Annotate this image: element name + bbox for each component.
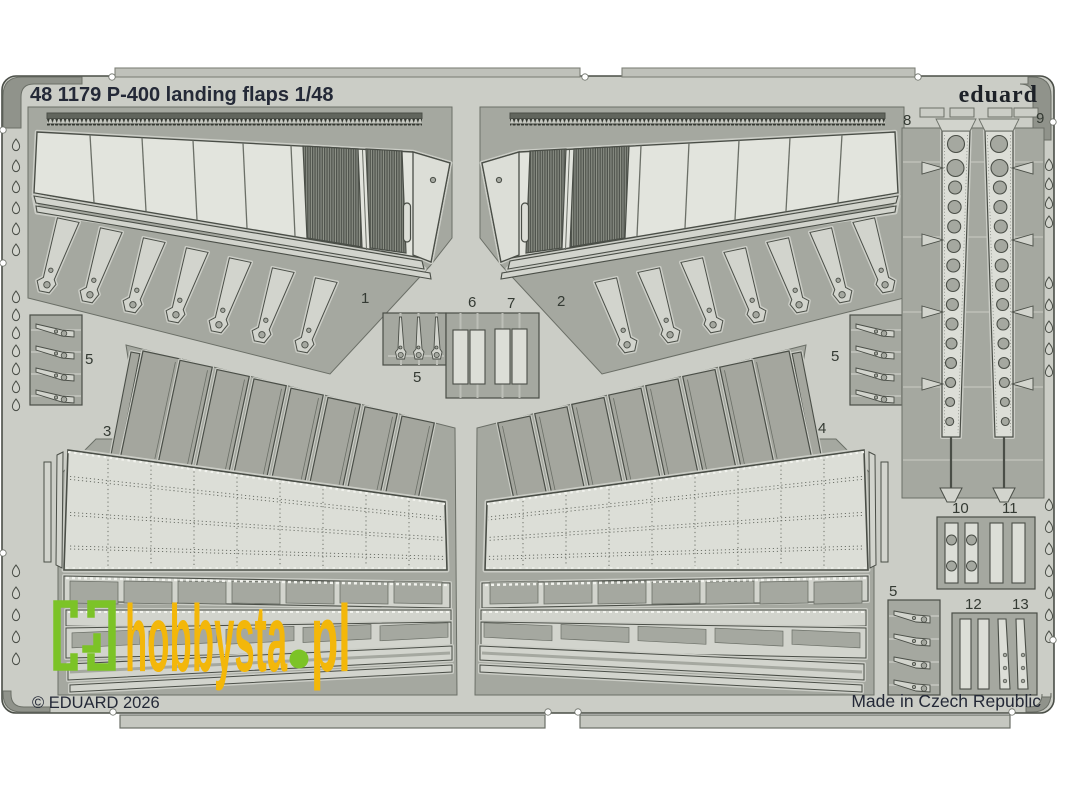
svg-text:9: 9 (1036, 110, 1044, 127)
svg-text:pl: pl (311, 585, 351, 691)
svg-text:5: 5 (413, 369, 421, 386)
svg-text:5: 5 (889, 583, 897, 600)
svg-text:8: 8 (903, 112, 911, 129)
svg-text:hobbysta: hobbysta (125, 587, 288, 693)
svg-text:© EDUARD 2026: © EDUARD 2026 (32, 694, 160, 712)
svg-text:11: 11 (1002, 500, 1018, 517)
svg-text:eduard: eduard (959, 82, 1038, 108)
svg-text:48 1179 P-400 landing flaps 1/: 48 1179 P-400 landing flaps 1/48 (30, 84, 334, 106)
svg-text:3: 3 (103, 423, 111, 440)
svg-text:Made in Czech Republic: Made in Czech Republic (851, 691, 1041, 711)
svg-text:5: 5 (831, 348, 839, 365)
svg-text:7: 7 (507, 295, 515, 312)
svg-text:5: 5 (85, 351, 93, 368)
svg-text:10: 10 (952, 500, 969, 517)
svg-text:12: 12 (965, 596, 982, 613)
svg-text:6: 6 (468, 294, 476, 311)
svg-text:1: 1 (361, 290, 369, 307)
svg-text:4: 4 (818, 420, 826, 437)
svg-text:13: 13 (1012, 596, 1029, 613)
svg-text:2: 2 (557, 293, 565, 310)
